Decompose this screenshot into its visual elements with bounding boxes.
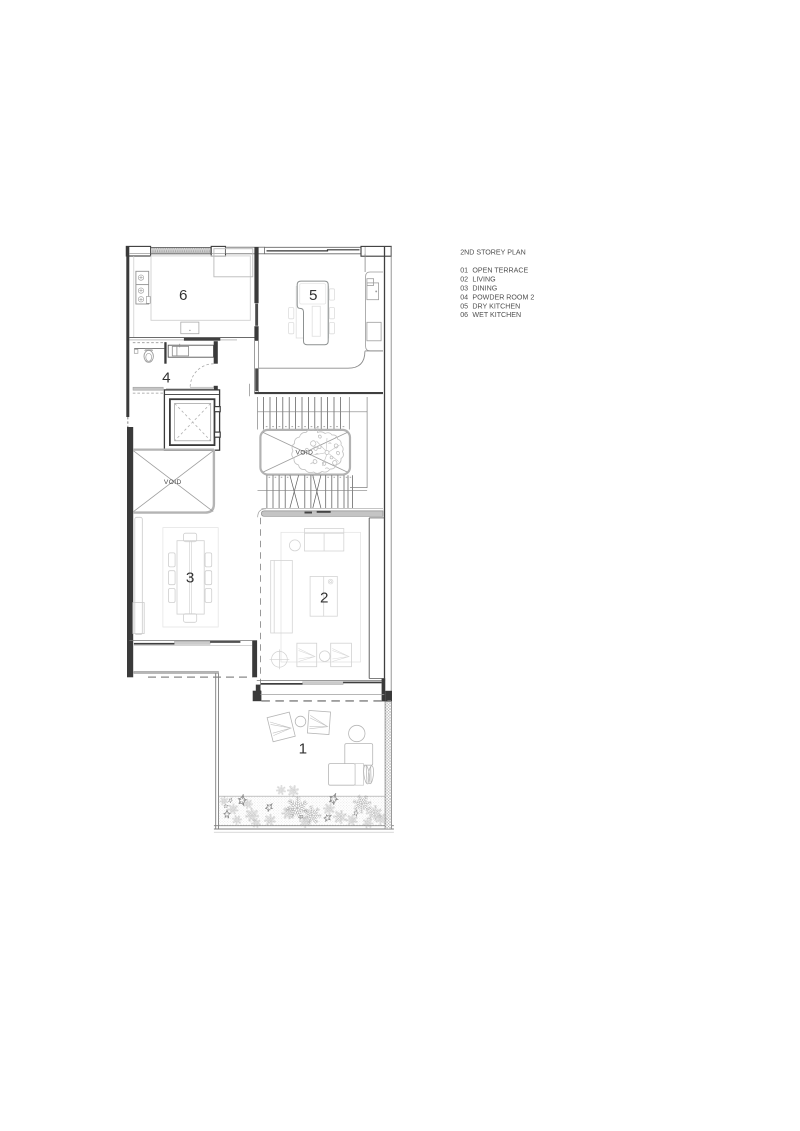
svg-text:4: 4 [162, 369, 170, 386]
svg-text:02: 02 [460, 276, 468, 284]
svg-text:6: 6 [179, 287, 187, 304]
svg-text:OPEN TERRACE: OPEN TERRACE [472, 267, 528, 275]
svg-text:POWDER ROOM 2: POWDER ROOM 2 [472, 293, 534, 301]
svg-text:DRY KITCHEN: DRY KITCHEN [472, 302, 520, 310]
svg-text:3: 3 [186, 570, 194, 587]
svg-text:2ND STOREY PLAN: 2ND STOREY PLAN [460, 249, 526, 257]
svg-text:5: 5 [309, 287, 317, 304]
svg-text:06: 06 [460, 311, 468, 319]
svg-text:03: 03 [460, 285, 468, 293]
svg-text:WET KITCHEN: WET KITCHEN [472, 311, 521, 319]
svg-text:1: 1 [299, 740, 307, 757]
svg-text:04: 04 [460, 293, 468, 301]
svg-text:01: 01 [460, 267, 468, 275]
svg-text:05: 05 [460, 302, 468, 310]
svg-text:VOID: VOID [164, 479, 182, 486]
svg-text:2: 2 [320, 589, 328, 606]
svg-text:DINING: DINING [472, 285, 497, 293]
svg-text:LIVING: LIVING [472, 276, 495, 284]
